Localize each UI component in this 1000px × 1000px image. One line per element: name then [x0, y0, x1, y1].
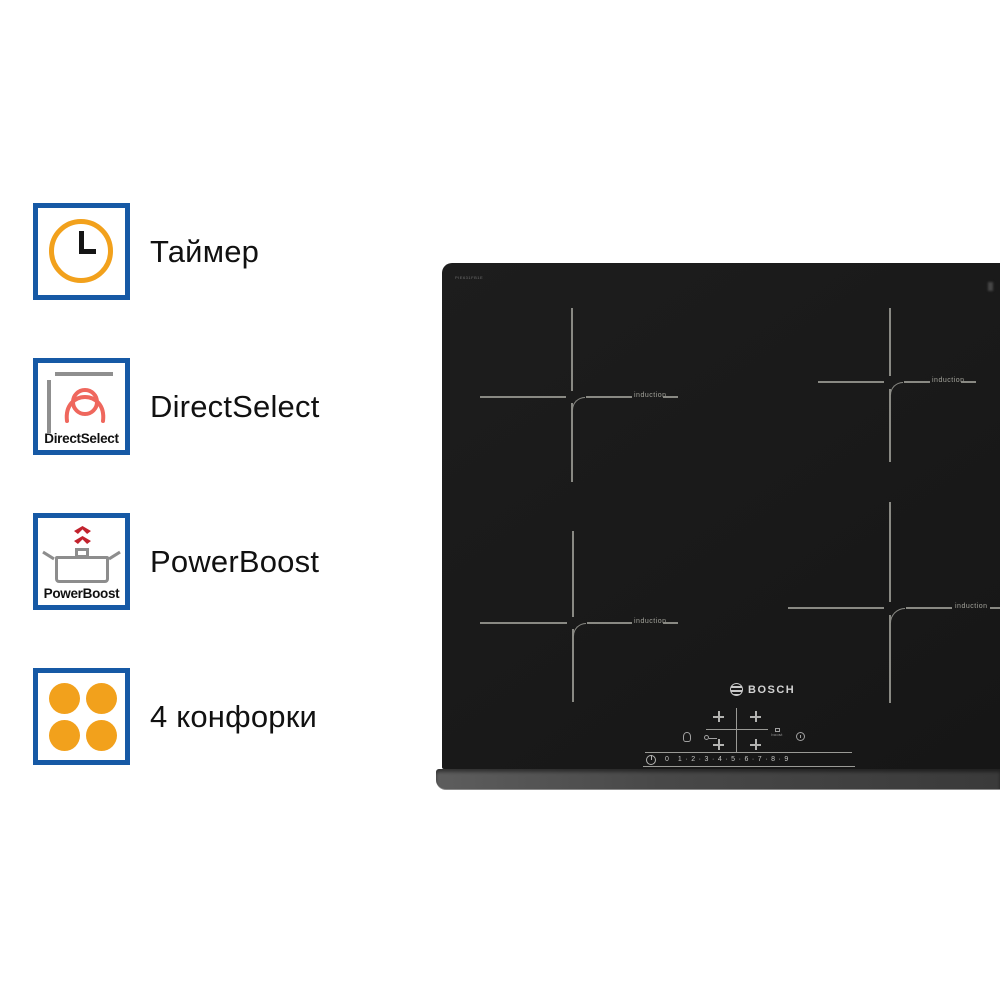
model-label: PIE631FB1E [455, 275, 483, 280]
burner-dot-icon [49, 683, 80, 714]
pot-handle-right [108, 551, 121, 560]
feature-label-directselect: DirectSelect [150, 389, 320, 425]
burners-badge [33, 668, 130, 765]
zone-select-plus-front-right [750, 739, 761, 750]
feature-powerboost: PowerBoost PowerBoost [33, 513, 319, 610]
feature-directselect: DirectSelect DirectSelect [33, 358, 320, 455]
burner-dot-icon [86, 720, 117, 751]
hob-front-edge [436, 769, 1000, 790]
feature-label-timer: Таймер [150, 234, 259, 270]
zone-label: induction [955, 603, 988, 611]
wipe-protection-hand-icon [683, 732, 691, 742]
bosch-armature-icon [730, 683, 743, 696]
coil-icon [61, 375, 109, 425]
boost-chevron-icon [74, 526, 91, 534]
feature-label-burners: 4 конфорки [150, 699, 317, 735]
zone-select-plus-rear-left [713, 711, 724, 722]
child-lock-key-icon [704, 735, 709, 740]
boost-label: boost [770, 732, 784, 737]
power-on-off-icon [646, 755, 656, 765]
burner-dot-icon [86, 683, 117, 714]
pot-icon [55, 556, 109, 583]
feature-timer: Таймер [33, 203, 259, 300]
power-level-scale: 0 1 · 2 · 3 · 4 · 5 · 6 · 7 · 8 · 9 [665, 755, 855, 765]
clock-hand-hour [79, 249, 96, 254]
feature-label-powerboost: PowerBoost [150, 544, 319, 580]
zone-select-plus-front-left [713, 739, 724, 750]
timer-badge [33, 203, 130, 300]
product-image: Таймер DirectSelect DirectSelect PowerBo… [0, 0, 1000, 1000]
zone-label: induction [634, 618, 667, 626]
zone-label: induction [932, 377, 965, 385]
feature-burners: 4 конфорки [33, 668, 317, 765]
zone-select-plus-rear-right [750, 711, 761, 722]
boost-chevron-icon [74, 536, 91, 544]
burner-dot-icon [49, 720, 80, 751]
timer-clock-icon [796, 732, 805, 741]
corner-line-left [47, 380, 51, 433]
badge-caption-directselect: DirectSelect [38, 431, 125, 446]
pot-handle-left [42, 551, 55, 560]
reflection-spot [988, 282, 993, 291]
induction-hob: PIE631FB1E induction induction [442, 263, 1000, 769]
directselect-badge: DirectSelect [33, 358, 130, 455]
boost-button-icon: boost [770, 728, 784, 737]
powerboost-badge: PowerBoost [33, 513, 130, 610]
bosch-logo-text: BOSCH [748, 684, 795, 696]
zone-label: induction [634, 392, 667, 400]
bosch-logo: BOSCH [730, 683, 795, 696]
badge-caption-powerboost: PowerBoost [38, 586, 125, 601]
